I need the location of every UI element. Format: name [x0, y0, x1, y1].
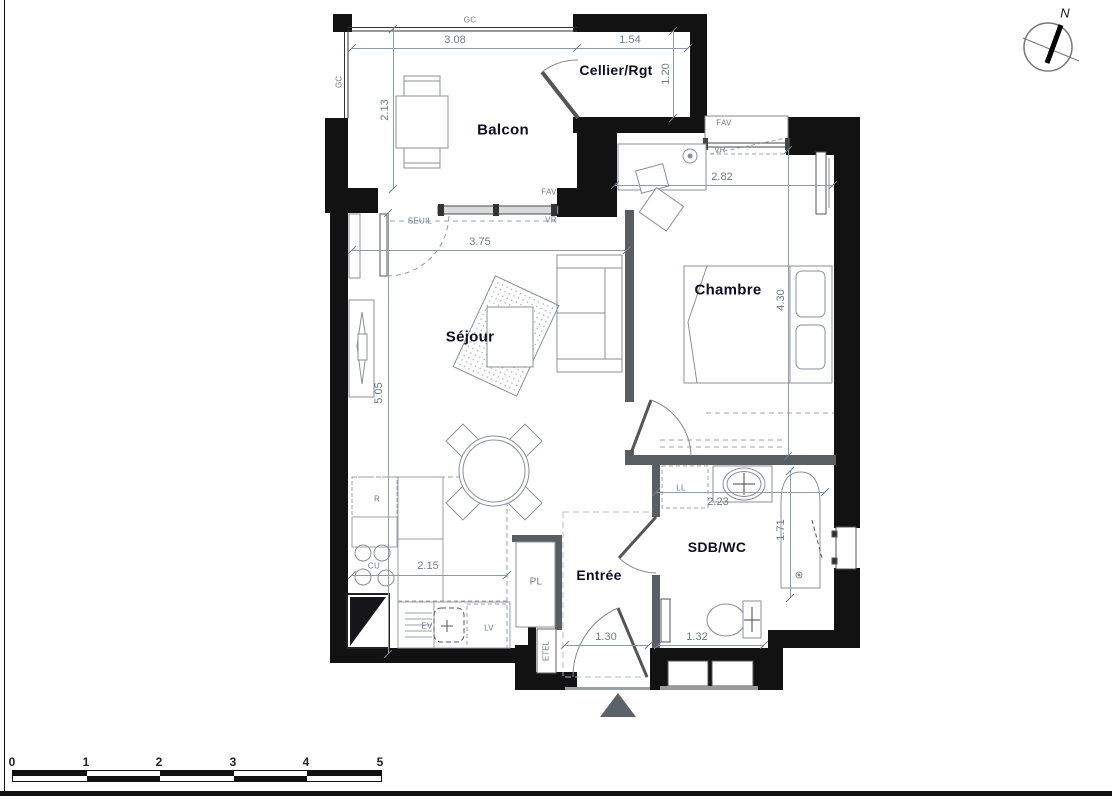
entrance-marker-icon: [600, 693, 636, 717]
tag-gc-left: GC: [335, 76, 344, 88]
tag-vr-sejour: VR: [545, 216, 557, 225]
balcony-table-and-chairs: [396, 76, 448, 168]
dim-label-sejour-depth: 5.05: [373, 382, 385, 403]
scale-tick-2: 2: [156, 755, 163, 769]
chambre-radiator: [816, 152, 829, 214]
dim-label-cellier-depth: 1.20: [660, 63, 672, 84]
floorplan-page: 3.08 1.54 2.13 1.20 2.82 4.30 3.75 5.05 …: [0, 0, 1112, 800]
dim-line: [577, 48, 688, 49]
tag-sink: EV: [421, 622, 432, 631]
dim-line: [788, 150, 789, 456]
scale-tick-5: 5: [377, 755, 384, 769]
chambre-door: [630, 400, 691, 456]
room-label-balcon: Balcon: [477, 122, 529, 139]
room-label-cellier: Cellier/Rgt: [579, 62, 652, 78]
tag-hob: CU: [368, 562, 380, 571]
scale-tick-1: 1: [83, 755, 90, 769]
room-label-sejour: Séjour: [446, 329, 494, 346]
dim-label-cellier-width: 1.54: [619, 34, 640, 46]
scale-tick-0: 0: [9, 755, 16, 769]
dim-line: [658, 645, 764, 646]
technical-duct: [347, 594, 389, 648]
tag-fav-sejour: FAV: [541, 188, 556, 197]
scale-tick-3: 3: [230, 755, 237, 769]
balcony-door: [380, 214, 556, 276]
tag-vr-chambre: VR: [714, 146, 726, 155]
compass-north-label: N: [1060, 6, 1069, 21]
tag-closet: PL: [530, 577, 543, 588]
sdb-windows: [660, 661, 758, 690]
sdb-wall-radiator: [661, 599, 670, 642]
dim-line: [565, 645, 649, 646]
bathtub: [781, 472, 822, 588]
room-label-sdb: SDB/WC: [688, 539, 747, 555]
north-arrow-icon: [1023, 23, 1079, 71]
tag-elec-panel: ETEL: [542, 641, 551, 661]
toilet: [707, 601, 761, 638]
dim-line: [352, 575, 507, 576]
dim-label-chambre-depth: 4.30: [775, 289, 787, 310]
dim-label-entry-door: 1.30: [595, 631, 616, 643]
chambre-dashed-lines: [660, 413, 834, 447]
room-label-chambre: Chambre: [694, 282, 761, 299]
tag-gc-top: GC: [464, 16, 477, 25]
dim-line: [352, 250, 627, 251]
chambre-desk: [618, 144, 706, 231]
scale-bar: [12, 770, 382, 782]
dim-line: [352, 48, 577, 49]
tag-dishwasher: LV: [484, 624, 494, 633]
dim-line: [790, 471, 791, 598]
dim-line: [615, 185, 833, 186]
towel-radiator: [832, 527, 856, 569]
dim-line: [388, 213, 389, 654]
tag-seuil: SEUIL: [408, 217, 433, 226]
tv-unit: [349, 300, 374, 397]
dim-label-sdb-run: 1.32: [686, 631, 707, 643]
dim-label-balcony-width: 3.08: [444, 34, 465, 46]
tag-fav-chambre: FAV: [716, 119, 731, 128]
plan-graphics: [0, 0, 1112, 800]
dim-label-sdb-width: 2.23: [707, 496, 728, 508]
tag-washer: LL: [676, 484, 686, 493]
sejour-window: [438, 204, 558, 216]
room-label-entree: Entrée: [576, 567, 621, 583]
dim-label-balcony-depth: 2.13: [379, 99, 391, 120]
dim-line: [393, 29, 394, 189]
dim-label-chambre-width: 2.82: [711, 171, 732, 183]
dining-table-and-chairs: [446, 424, 542, 520]
entrance-threshold: [565, 687, 650, 690]
dim-label-kitchen-run: 2.15: [417, 560, 438, 572]
tag-fridge: R: [374, 495, 380, 504]
sofa: [557, 255, 622, 372]
dim-label-sejour-width: 3.75: [469, 236, 490, 248]
sdb-door: [619, 517, 656, 573]
dim-label-bath-length: 1.71: [775, 519, 787, 540]
cellier-door: [542, 60, 578, 118]
dim-line: [673, 31, 674, 118]
scale-tick-4: 4: [303, 755, 310, 769]
